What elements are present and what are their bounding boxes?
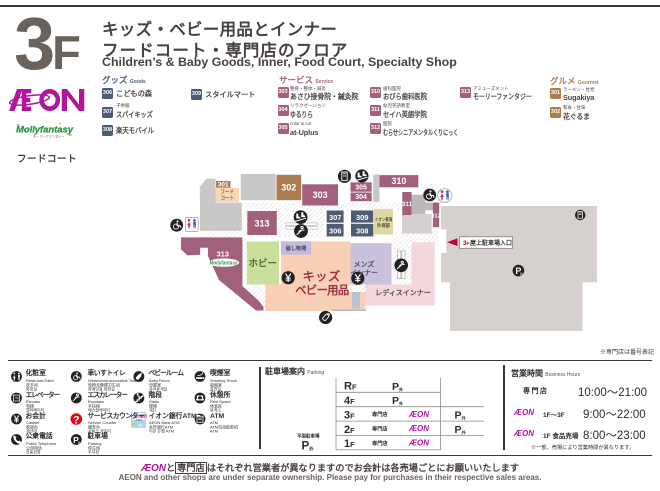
svg-text:ÆON: ÆON [408,424,429,433]
svg-text:1F: 1F [344,438,355,450]
svg-text:311: 311 [402,201,413,208]
svg-text:レディスインナー: レディスインナー [375,288,431,297]
svg-text:ÆON: ÆON [408,410,429,419]
svg-text:P外: P外 [302,441,315,453]
svg-text:ÆON: ÆON [408,439,429,448]
svg-text:2F: 2F [344,424,355,436]
svg-text:P外: P外 [392,395,404,407]
svg-text:302: 302 [281,183,296,193]
svg-text:Mollyfantasy: Mollyfantasy [210,261,238,267]
svg-text:専門店: 専門店 [372,410,388,418]
svg-text:外: 外 [520,272,524,277]
svg-text:313: 313 [216,250,229,259]
svg-text:3F: 3F [463,240,470,247]
svg-text:RF: RF [344,381,357,393]
svg-text:307: 307 [329,213,342,222]
svg-text:312: 312 [431,214,440,220]
svg-text:3F: 3F [344,409,355,421]
svg-text:310: 310 [391,176,406,186]
svg-text:催し物場: 催し物場 [286,244,308,252]
svg-text:外商部: 外商部 [377,222,391,229]
svg-text:304: 304 [355,194,367,201]
svg-text:313: 313 [254,219,269,229]
svg-text:P外: P外 [455,410,467,422]
svg-text:平面駐車場: 平面駐車場 [297,433,320,440]
svg-text:メンズ: メンズ [354,260,375,269]
svg-text:専門店: 専門店 [372,439,388,447]
svg-text:コート: コート [220,195,234,201]
svg-text:屋上駐車場入口: 屋上駐車場入口 [470,239,512,247]
svg-text:キッズ: キッズ [303,268,341,283]
svg-text:301: 301 [218,182,229,189]
svg-text:309: 309 [356,213,369,222]
svg-text:P外: P外 [455,424,467,436]
svg-text:フード: フード [220,190,234,196]
svg-text:308: 308 [356,226,369,235]
svg-text:303: 303 [313,190,328,200]
svg-text:4F: 4F [344,395,355,407]
svg-text:専門店: 専門店 [372,424,388,432]
svg-text:ベビー用品: ベビー用品 [295,283,349,297]
svg-text:305: 305 [355,185,367,192]
svg-text:ホビー: ホビー [249,258,278,270]
svg-text:P外: P外 [392,381,404,393]
svg-text:306: 306 [329,226,342,235]
